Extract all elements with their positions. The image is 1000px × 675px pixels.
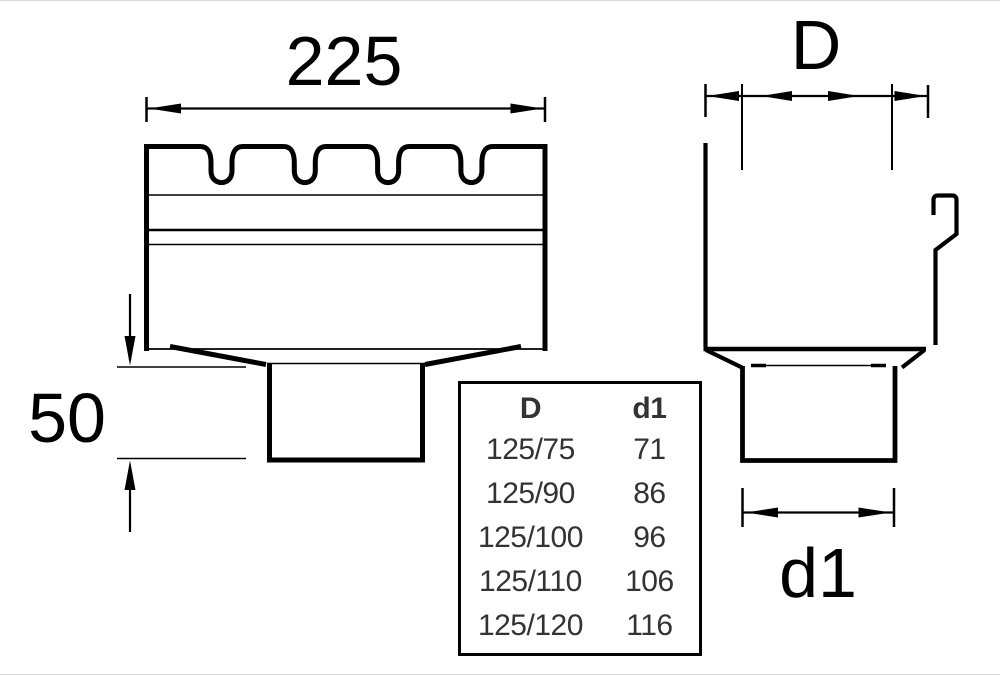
table-row: 125/120 116	[461, 604, 699, 648]
side-view-outline	[704, 143, 957, 461]
table-row: 125/90 86	[461, 472, 699, 516]
front-body-outline	[147, 147, 546, 352]
dim-D-outer-right-arrowhead	[895, 91, 927, 101]
dim-225-right-arrowhead	[511, 104, 543, 114]
table-cell-d1: 71	[600, 433, 699, 467]
table-row: 125/100 96	[461, 516, 699, 560]
front-width-dimension: 225	[147, 22, 546, 122]
dim-d1-left-arrowhead	[746, 508, 778, 518]
table-row: 125/75 71	[461, 428, 699, 472]
table-cell-d: 125/75	[461, 433, 600, 467]
dim-d1-label: d1	[779, 534, 857, 612]
side-top-width-dimension: D	[706, 6, 929, 170]
dim-225-left-arrowhead	[149, 104, 181, 114]
dimension-table: D d1 125/75 71 125/90 86 125/100 96 125/…	[458, 381, 702, 656]
dim-D-inner-left-arrowhead	[761, 91, 792, 101]
table-cell-d: 125/100	[461, 521, 600, 555]
dim-D-outer-left-arrowhead	[708, 91, 740, 101]
table-cell-d1: 96	[600, 521, 699, 555]
side-spigot-outline	[743, 366, 896, 461]
table-cell-d: 125/110	[461, 565, 600, 599]
dim-225-label: 225	[286, 22, 403, 100]
dim-D-inner-right-arrowhead	[828, 91, 859, 101]
table-cell-d1: 106	[600, 565, 699, 599]
table-cell-d: 125/120	[461, 609, 600, 643]
table-header-d1: d1	[600, 392, 699, 426]
dimension-table-header-row: D d1	[461, 390, 699, 428]
dim-d1-right-arrowhead	[859, 508, 891, 518]
side-bead-hook	[934, 196, 957, 346]
dim-D-label: D	[791, 6, 842, 84]
table-cell-d1: 116	[600, 609, 699, 643]
table-row: 125/110 106	[461, 560, 699, 604]
table-header-d: D	[461, 392, 600, 426]
side-funnel-left-slant	[706, 350, 742, 368]
side-funnel-right-slant	[902, 350, 925, 368]
table-cell-d: 125/90	[461, 477, 600, 511]
technical-drawing-page: 225 50	[0, 0, 1000, 675]
front-spigot-outline	[270, 363, 423, 460]
side-outlet-width-dimension: d1	[743, 488, 895, 612]
dim-50-label: 50	[28, 379, 106, 457]
dim-50-top-arrowhead	[125, 336, 136, 366]
table-cell-d1: 86	[600, 477, 699, 511]
front-spigot-height-dimension: 50	[28, 294, 246, 532]
